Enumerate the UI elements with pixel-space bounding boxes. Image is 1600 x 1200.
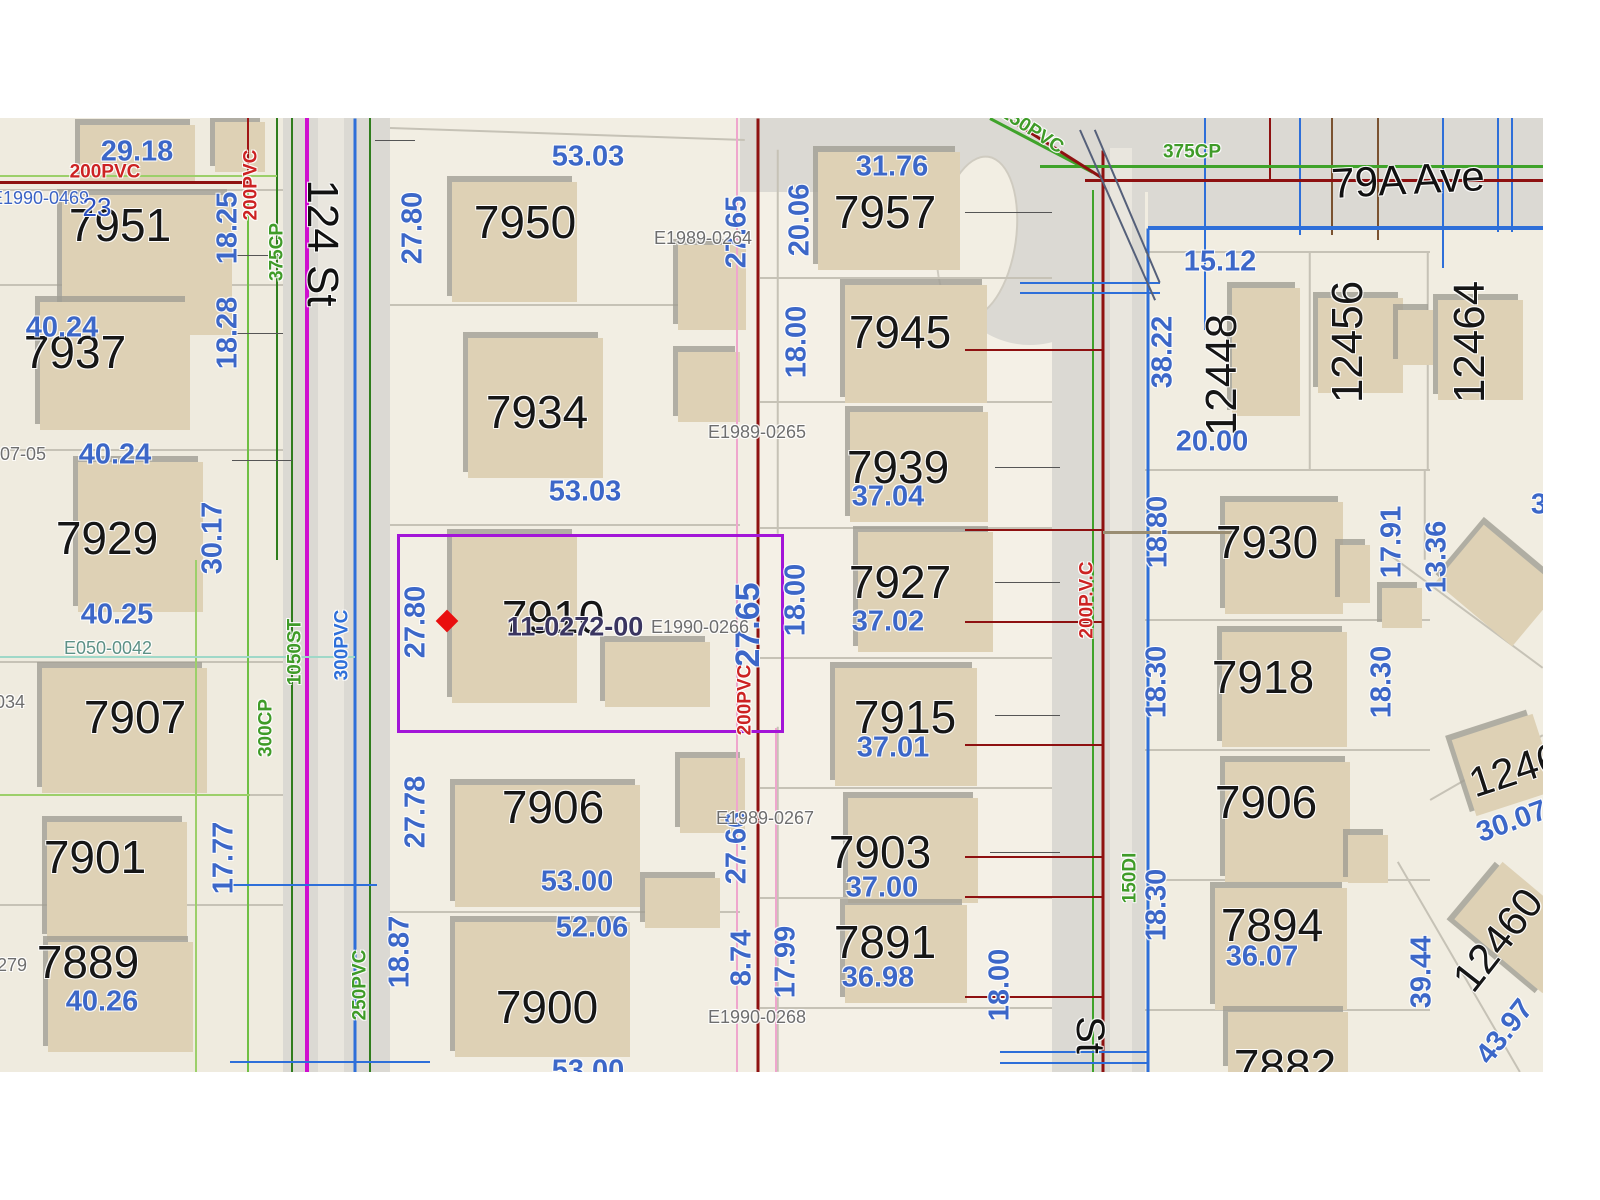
utility-line [0,794,250,796]
building [1348,835,1388,883]
utility-line [995,582,1060,583]
street-label: 79A Ave [1330,155,1485,205]
utility-line [1102,150,1105,1072]
utility-label: 150DI [1121,853,1140,904]
lot-line [1309,252,1311,470]
reference-label: E1989-0264 [654,229,752,247]
dimension-label: 30.17 [199,502,228,575]
utility-label: 200PVC [736,665,755,736]
utility-line [195,560,197,1072]
lot-line [1145,749,1430,751]
dimension-label: 53.00 [552,1057,625,1073]
utility-line [369,118,371,1072]
utility-line [247,185,249,1072]
utility-line [995,467,1060,468]
utility-label: 300PVC [333,610,352,681]
utility-line [1148,226,1543,230]
dimension-label: 40.24 [79,441,152,470]
house-number: 7889 [37,939,139,985]
utility-line [965,349,1103,351]
house-number: 7907 [84,694,186,740]
house-number: 12464 [1448,281,1492,403]
utility-line [1299,118,1301,235]
utility-label: 300CP [257,699,276,757]
dimension-label: 18.30 [1143,869,1172,942]
dimension-label: 27.80 [399,192,428,265]
utility-line [375,140,415,141]
reference-label: 007-05 [0,445,46,463]
house-number: 7901 [44,834,146,880]
screenshot-stage: 7951793779297907790178897950793479107906… [0,0,1600,1200]
house-number: 7900 [496,984,598,1030]
dimension-label: 18.80 [1144,496,1173,569]
utility-line [230,1061,430,1063]
dimension-label: 40.24 [26,314,99,343]
street-label: St [1070,1016,1110,1054]
road-surface [1110,148,1132,1072]
house-number: 7918 [1212,654,1314,700]
utility-line [1497,118,1499,232]
reference-label: E1990-0266 [651,618,749,636]
dimension-label: 18.00 [782,564,811,637]
house-number: 7906 [1215,779,1317,825]
house-number: 7903 [829,829,931,875]
dimension-label: 39.44 [1408,936,1437,1009]
dimension-label: 20.06 [786,184,815,257]
house-number: 7930 [1216,519,1318,565]
dimension-label: 31.76 [856,153,929,182]
dimension-label: 36.98 [842,964,915,993]
utility-line [232,460,292,461]
utility-line [1000,1062,1148,1064]
utility-line [965,529,1103,531]
dimension-label: 40.25 [81,601,154,630]
lot-line [760,787,1052,789]
building [1398,310,1433,365]
utility-line [990,852,1060,853]
reference-label: E1990-0469 [0,189,89,207]
utility-line [965,212,1052,213]
lot-line [1145,469,1430,471]
lot-line [760,277,1052,279]
dimension-label: 27.80 [402,586,431,659]
lot-line [760,657,1052,659]
dimension-label: 18.00 [986,949,1015,1022]
reference-label: 034 [0,693,25,711]
utility-line [291,118,293,1072]
utility-label: 200PVC [70,163,141,182]
building [1340,545,1370,603]
house-number: 7934 [486,389,588,435]
building [645,878,720,928]
utility-label: 1050ST [286,619,305,686]
house-number: 12448 [1200,314,1244,436]
dimension-label: 3 [1531,491,1543,520]
reference-label: E1989-0265 [708,423,806,441]
dimension-label: 40.26 [66,988,139,1017]
dimension-label: 37.02 [852,608,925,637]
dimension-label: 53.03 [552,143,625,172]
street-label: 124 St [300,179,344,306]
house-number: 7957 [834,189,936,235]
parcel-id-label: 11-0272-00 [507,614,644,641]
house-number: 7927 [849,559,951,605]
dimension-label: 36.07 [1226,943,1299,972]
utility-line [965,856,1103,858]
utility-line [965,744,1103,746]
dimension-label: 38.22 [1149,316,1178,389]
dimension-label: 18.28 [214,297,243,370]
lot-line [0,661,283,663]
reference-label: E1990-0268 [708,1008,806,1026]
utility-line [965,896,1103,898]
house-number: 7945 [849,309,951,355]
house-number: 7950 [474,199,576,245]
dimension-label: 8.74 [728,930,757,986]
utility-line [1020,292,1160,294]
parcel-map-canvas[interactable]: 7951793779297907790178897950793479107906… [0,118,1543,1072]
dimension-label: 52.06 [556,914,629,943]
building [1382,588,1422,628]
house-number: 7882 [1234,1043,1336,1072]
utility-line [1020,282,1160,284]
dimension-label: 37.00 [846,874,919,903]
utility-label: 375CP [1163,143,1221,162]
utility-label: 375CP [268,223,287,281]
dimension-label: 17.77 [210,822,239,895]
dimension-label: 15.12 [1184,248,1257,277]
house-number: 7891 [834,919,936,965]
dimension-label: 37.04 [852,483,925,512]
dimension-label: 53.03 [549,478,622,507]
dimension-label: 18.30 [1143,646,1172,719]
utility-line [1511,118,1513,232]
dimension-label: 20.00 [1176,428,1249,457]
reference-label: 279 [0,956,27,974]
dimension-label: 18.30 [1368,646,1397,719]
utility-label: 250PVC [351,950,370,1021]
reference-label: E050-0042 [64,639,152,657]
dimension-label: 18.25 [214,192,243,265]
utility-line [1269,118,1271,180]
utility-line [354,118,357,1072]
utility-line [995,715,1060,716]
dimension-label: 27.78 [402,776,431,849]
dimension-label: 18.87 [386,916,415,989]
reference-label: E1989-0267 [716,809,814,827]
house-number: 12456 [1326,281,1370,403]
house-number: 7929 [56,515,158,561]
dimension-label: 53.00 [541,868,614,897]
lot-line [390,524,740,526]
dimension-label: 17.99 [772,926,801,999]
utility-label: 200PVC [242,150,261,221]
house-number: 7906 [502,784,604,830]
dimension-label: 37.01 [857,734,930,763]
dimension-label: 13.36 [1423,521,1452,594]
building [678,352,740,422]
dimension-label: 18.00 [783,306,812,379]
utility-label: 200P.V.C [1078,561,1097,638]
utility-line [276,118,278,560]
reference-label: 23 [83,194,112,220]
lot-line [777,150,779,534]
utility-line [230,884,377,886]
dimension-label: 17.91 [1378,506,1407,579]
